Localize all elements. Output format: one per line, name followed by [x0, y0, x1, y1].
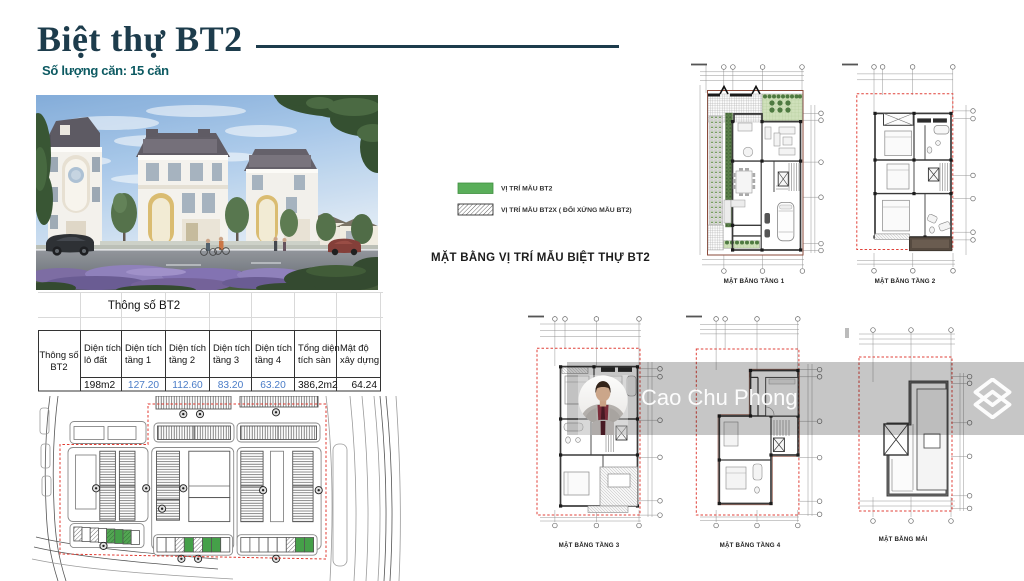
svg-text:64.24: 64.24: [352, 380, 378, 391]
svg-text:Diện tích: Diện tích: [255, 342, 292, 353]
svg-text:tầng 3: tầng 3: [213, 354, 239, 365]
svg-text:Diện tích: Diện tích: [213, 342, 250, 353]
svg-text:Tổng diện: Tổng diện: [298, 342, 340, 353]
svg-text:VỊ TRÍ MẪU BT2X ( ĐỐI XỨNG MẪU: VỊ TRÍ MẪU BT2X ( ĐỐI XỨNG MẪU BT2): [501, 204, 632, 214]
svg-text:Thông số: Thông số: [39, 349, 79, 360]
svg-text:83.20: 83.20: [218, 380, 244, 391]
svg-text:Diện tích: Diện tích: [125, 342, 162, 353]
svg-text:BT2: BT2: [50, 361, 67, 372]
svg-text:VỊ TRÍ MẪU BT2: VỊ TRÍ MẪU BT2: [501, 184, 553, 193]
svg-text:127.20: 127.20: [128, 380, 159, 391]
svg-text:lô đất: lô đất: [84, 354, 107, 365]
svg-text:Thông số BT2: Thông số BT2: [108, 300, 180, 312]
svg-text:tầng 1: tầng 1: [125, 354, 151, 365]
svg-text:Diện tích: Diện tích: [169, 342, 206, 353]
svg-text:Mật độ: Mật độ: [340, 342, 369, 353]
svg-text:tầng 2: tầng 2: [169, 354, 195, 365]
svg-text:112.60: 112.60: [172, 380, 203, 391]
svg-text:tích sàn: tích sàn: [298, 354, 331, 365]
svg-text:386,2m2: 386,2m2: [298, 380, 338, 391]
svg-text:tầng 4: tầng 4: [255, 354, 281, 365]
svg-text:198m2: 198m2: [84, 380, 115, 391]
svg-text:Diện tích: Diện tích: [84, 342, 121, 353]
svg-text:63.20: 63.20: [260, 380, 286, 391]
svg-text:xây dựng: xây dựng: [340, 354, 379, 365]
